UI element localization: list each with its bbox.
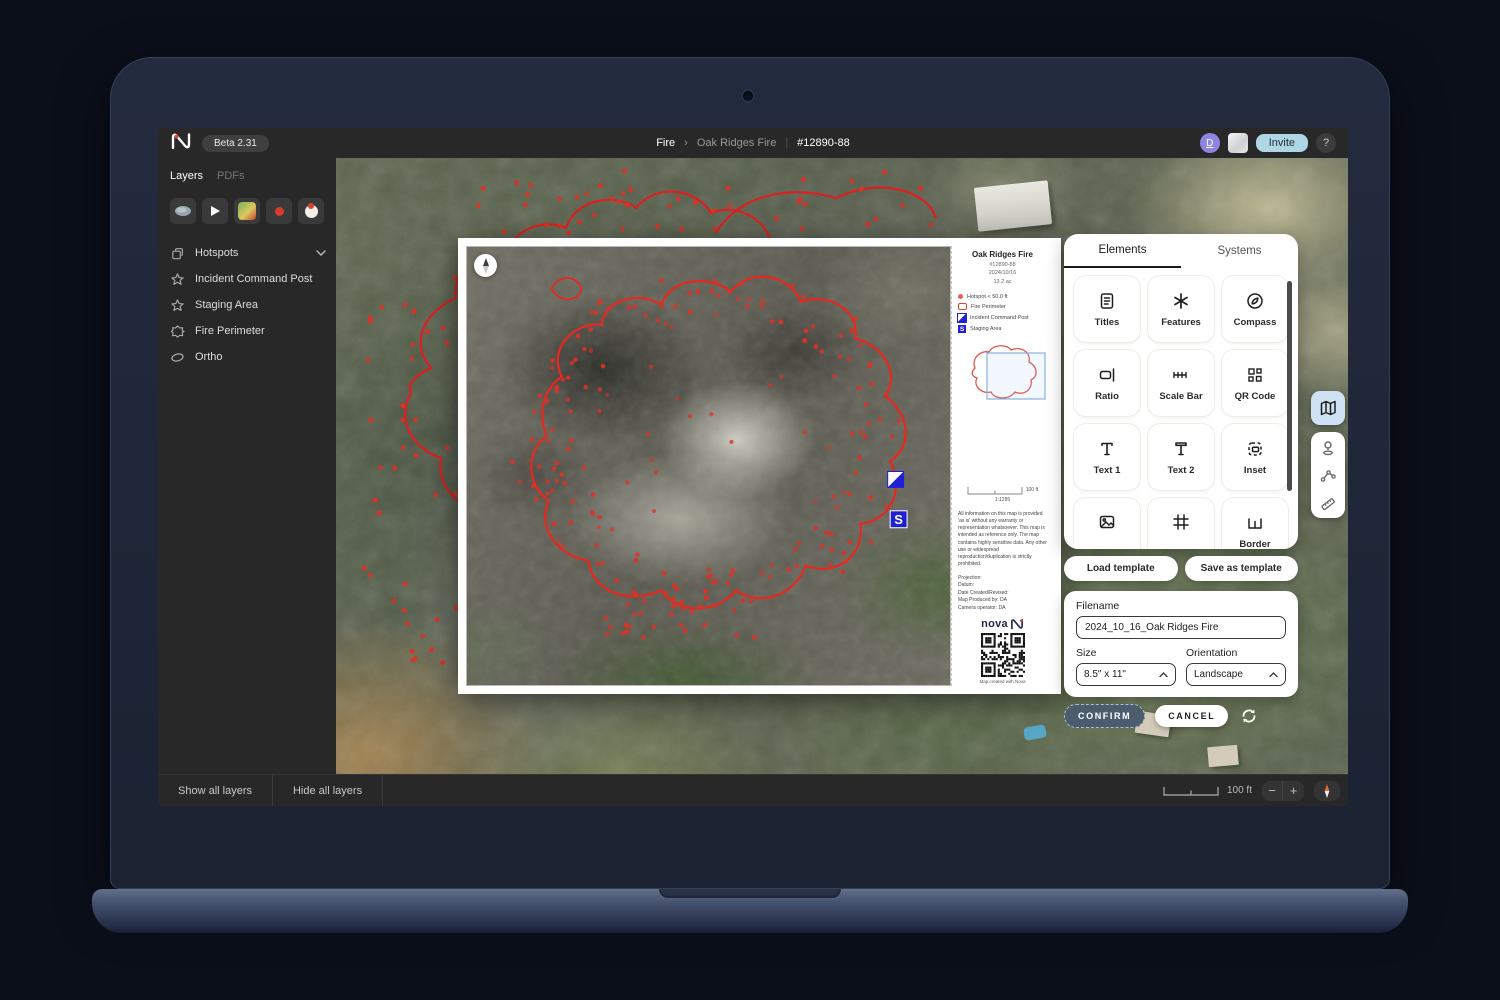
size-label: Size: [1076, 647, 1176, 659]
app-window: Beta 2.31 Fire › Oak Ridges Fire | #1289…: [158, 128, 1348, 806]
layers-copy-icon: [170, 246, 185, 261]
paper-disclaimer: All information on this map is provided …: [958, 511, 1047, 569]
compass-reset-button[interactable]: [1314, 781, 1340, 801]
layer-item-fire-perimeter[interactable]: Fire Perimeter: [170, 318, 336, 344]
tab-elements[interactable]: Elements: [1064, 234, 1181, 268]
titles-icon: [1097, 291, 1117, 311]
polyline-tool-icon[interactable]: [1319, 466, 1337, 484]
text1-icon: [1097, 439, 1117, 459]
paper-scale-ratio: 1:1285: [958, 497, 1047, 503]
ratio-icon: [1097, 365, 1117, 385]
app-logo-icon: [170, 132, 192, 155]
north-arrow-element[interactable]: [474, 254, 497, 277]
webcam-icon: [743, 91, 753, 101]
beta-badge: Beta 2.31: [202, 135, 269, 152]
grid-icon: [1171, 512, 1191, 532]
svg-text:S: S: [894, 512, 903, 527]
paper-credits: Projection: Datum: Date Created/Revised:…: [958, 575, 1047, 613]
map-icon: [1318, 398, 1338, 418]
staging-marker[interactable]: S: [890, 511, 907, 528]
scale-bracket-icon: [1163, 785, 1219, 797]
inset-icon: [1245, 439, 1265, 459]
size-select[interactable]: 8.5" x 11": [1076, 663, 1176, 686]
refresh-icon[interactable]: [1238, 705, 1260, 727]
text2-icon: [1171, 439, 1191, 459]
element-card-grid[interactable]: [1148, 498, 1214, 549]
compass-icon: [1245, 291, 1265, 311]
print-preview-sheet[interactable]: S Oak Ridges Fire #12890-88 2024/10/16 1…: [458, 238, 1061, 694]
stone-icon[interactable]: [170, 198, 196, 224]
print-preview-map: S: [466, 246, 951, 686]
orientation-select[interactable]: Landscape: [1186, 663, 1286, 686]
legend-label: Hotspot < 50.0 ft: [967, 294, 1008, 300]
chevron-down-icon[interactable]: [316, 250, 326, 256]
print-preview-margin: Oak Ridges Fire #12890-88 2024/10/16 13.…: [951, 246, 1053, 686]
element-card-qrcode[interactable]: QR Code: [1222, 350, 1288, 416]
incident-command-post-icon: [958, 314, 966, 322]
laptop-notch: [659, 889, 841, 898]
pin-tool-icon[interactable]: [1319, 439, 1337, 457]
element-card-inset[interactable]: Inset: [1222, 424, 1288, 490]
layer-item-ortho[interactable]: Ortho: [170, 344, 336, 370]
layer-label: Ortho: [195, 351, 326, 363]
caret-up-icon: [1159, 672, 1168, 677]
orientation-label: Orientation: [1186, 647, 1286, 659]
element-card-compass[interactable]: Compass: [1222, 276, 1288, 342]
red-dot-icon[interactable]: [266, 198, 292, 224]
map-canvas[interactable]: S Oak Ridges Fire #12890-88 2024/10/16 1…: [336, 158, 1348, 774]
paper-incident-id: #12890-88: [958, 262, 1047, 268]
zoom-out-button[interactable]: −: [1262, 781, 1283, 801]
map-layers-button[interactable]: [1311, 391, 1345, 425]
map-scale: 100 ft: [1163, 785, 1252, 797]
paper-legend: Hotspot < 50.0 ft Fire Perimeter Inciden…: [958, 294, 1047, 334]
breadcrumb-separator-icon: ›: [684, 137, 688, 149]
layer-label: Staging Area: [195, 299, 326, 311]
nova-wordmark: nova: [981, 618, 1008, 630]
element-card-scalebar[interactable]: Scale Bar: [1148, 350, 1214, 416]
legend-label: Staging Area: [970, 326, 1002, 332]
layer-item-icp[interactable]: Incident Command Post: [170, 266, 336, 292]
workspace-thumbnail[interactable]: [1228, 133, 1248, 153]
breadcrumb-item[interactable]: Oak Ridges Fire: [697, 137, 776, 149]
top-bar: Beta 2.31 Fire › Oak Ridges Fire | #1289…: [158, 128, 1348, 158]
fire-perimeter-icon: [958, 303, 967, 310]
hotspot-dot-icon: [958, 294, 963, 299]
laptop-screen: Beta 2.31 Fire › Oak Ridges Fire | #1289…: [110, 57, 1390, 889]
laptop-base: [92, 889, 1408, 933]
cancel-button[interactable]: CANCEL: [1155, 705, 1228, 727]
layers-sidebar: Layers PDFs Hotspots Incide: [158, 158, 336, 774]
ruler-tool-icon[interactable]: [1319, 493, 1337, 511]
icp-marker[interactable]: [887, 471, 904, 488]
layer-label: Fire Perimeter: [195, 325, 326, 337]
panel-scrollbar[interactable]: [1287, 281, 1292, 491]
legend-label: Incident Command Post: [970, 315, 1029, 321]
layer-label: Hotspots: [195, 247, 306, 259]
map-tool-stack: [1311, 432, 1345, 518]
legend-label: Fire Perimeter: [971, 304, 1006, 310]
polygon-icon: [170, 324, 185, 339]
qr-code: [981, 633, 1025, 677]
element-card-features[interactable]: Features: [1148, 276, 1214, 342]
qr-caption: Map created with Nova: [958, 679, 1047, 684]
element-card-text1[interactable]: Text 1: [1074, 424, 1140, 490]
element-card-ratio[interactable]: Ratio: [1074, 350, 1140, 416]
qrcode-icon: [1245, 365, 1265, 385]
star-icon: [170, 272, 185, 287]
zoom-in-button[interactable]: +: [1283, 781, 1304, 801]
layer-item-staging[interactable]: Staging Area: [170, 292, 336, 318]
hide-all-layers-button[interactable]: Hide all layers: [273, 775, 383, 807]
avatar[interactable]: D: [1200, 133, 1220, 153]
load-template-button[interactable]: Load template: [1064, 556, 1178, 581]
help-button[interactable]: ?: [1316, 133, 1336, 153]
inset-map: [957, 340, 1049, 417]
save-template-button[interactable]: Save as template: [1185, 556, 1299, 581]
scalebar-icon: [1171, 365, 1191, 385]
status-bar: Show all layers Hide all layers 100 ft −…: [158, 774, 1348, 806]
staging-area-icon: S: [958, 325, 966, 333]
paper-scale-bar: 100 ft: [958, 486, 1047, 495]
features-icon: [1171, 291, 1191, 311]
tab-systems[interactable]: Systems: [1181, 234, 1298, 268]
layer-tool-row: [170, 198, 336, 224]
zoom-controls: − +: [1262, 781, 1304, 801]
caret-up-icon: [1269, 672, 1278, 677]
paper-date: 2024/10/16: [958, 270, 1047, 276]
filename-input[interactable]: [1076, 616, 1286, 639]
image-icon: [1097, 512, 1117, 532]
tab-layers[interactable]: Layers: [170, 170, 203, 182]
export-form: Filename Size 8.5" x 11" Orientation: [1064, 591, 1298, 697]
tab-pdfs[interactable]: PDFs: [217, 170, 245, 182]
print-map-overlay: S: [467, 247, 950, 685]
breadcrumb-section[interactable]: Fire: [656, 137, 675, 149]
nova-logo-icon: [1010, 618, 1024, 630]
ellipse-icon: [170, 350, 185, 365]
paper-area: 13.2 ac: [958, 279, 1047, 285]
layer-label: Incident Command Post: [195, 273, 326, 285]
border-icon: [1245, 513, 1265, 533]
compass-needle-icon: [1321, 783, 1333, 799]
layer-item-hotspots[interactable]: Hotspots: [170, 240, 336, 266]
element-card-image[interactable]: [1074, 498, 1140, 549]
element-card-border[interactable]: Border: [1222, 498, 1288, 549]
breadcrumb-divider: |: [785, 137, 788, 149]
map-tools: [1311, 391, 1345, 518]
breadcrumb: Fire › Oak Ridges Fire | #12890-88: [656, 137, 850, 149]
paper-title: Oak Ridges Fire: [958, 250, 1047, 259]
element-card-text2[interactable]: Text 2: [1148, 424, 1214, 490]
hotspot-cluster-icon[interactable]: [298, 198, 324, 224]
element-card-titles[interactable]: Titles: [1074, 276, 1140, 342]
confirm-button[interactable]: CONFIRM: [1064, 704, 1145, 728]
invite-button[interactable]: Invite: [1256, 134, 1308, 152]
show-all-layers-button[interactable]: Show all layers: [158, 775, 273, 807]
filename-label: Filename: [1076, 600, 1286, 612]
incident-id: #12890-88: [797, 137, 850, 149]
nova-brand: nova: [958, 618, 1047, 630]
elements-panel: Elements Systems Titles Features: [1064, 234, 1298, 549]
play-icon[interactable]: [202, 198, 228, 224]
star-icon: [170, 298, 185, 313]
image-icon[interactable]: [234, 198, 260, 224]
